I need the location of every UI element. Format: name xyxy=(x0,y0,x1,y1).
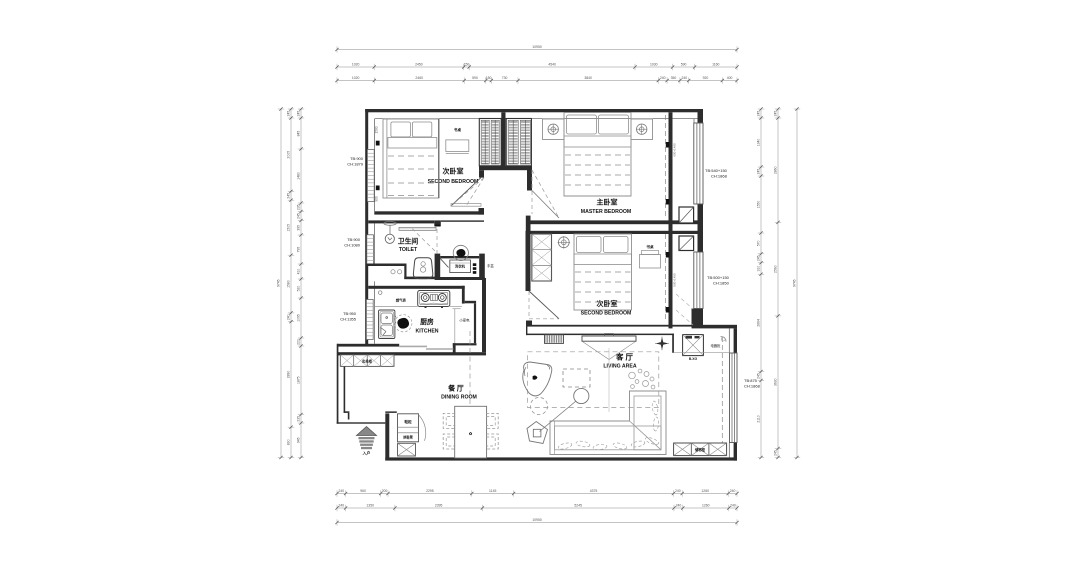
svg-text:CH:1355: CH:1355 xyxy=(340,317,357,322)
svg-text:240: 240 xyxy=(675,489,681,493)
svg-text:240: 240 xyxy=(338,489,344,493)
svg-text:245: 245 xyxy=(287,111,291,117)
svg-text:换鞋凳: 换鞋凳 xyxy=(403,435,413,440)
svg-text:2560: 2560 xyxy=(774,265,778,273)
svg-text:245: 245 xyxy=(287,193,291,199)
svg-text:TB:900: TB:900 xyxy=(347,237,361,242)
svg-text:150: 150 xyxy=(486,76,492,80)
svg-text:845: 845 xyxy=(297,131,301,137)
svg-text:1095: 1095 xyxy=(297,314,301,322)
svg-text:10950: 10950 xyxy=(532,45,542,49)
svg-text:520: 520 xyxy=(297,286,301,292)
svg-text:3630: 3630 xyxy=(774,378,778,386)
svg-text:玄关柜: 玄关柜 xyxy=(362,359,373,364)
svg-text:1260: 1260 xyxy=(701,489,709,493)
svg-text:2295: 2295 xyxy=(426,489,434,493)
svg-text:1260: 1260 xyxy=(702,503,710,507)
svg-text:客 厅: 客 厅 xyxy=(615,352,634,362)
svg-text:1020: 1020 xyxy=(352,76,360,80)
svg-text:235: 235 xyxy=(297,204,301,210)
svg-text:9745: 9745 xyxy=(793,279,797,287)
svg-text:电器柜: 电器柜 xyxy=(711,343,722,348)
svg-text:830: 830 xyxy=(287,439,291,445)
svg-text:3840: 3840 xyxy=(584,76,592,80)
svg-text:410: 410 xyxy=(297,269,301,275)
svg-text:主卧室: 主卧室 xyxy=(597,198,618,207)
svg-text:TB:900: TB:900 xyxy=(350,156,364,161)
svg-text:1160: 1160 xyxy=(712,62,719,66)
svg-text:TB:950: TB:950 xyxy=(343,311,357,316)
svg-text:240: 240 xyxy=(287,314,291,320)
svg-text:2005: 2005 xyxy=(287,151,291,159)
svg-text:CH:1879: CH:1879 xyxy=(347,162,364,167)
svg-text:CH:1850: CH:1850 xyxy=(713,281,730,286)
svg-text:燃气表: 燃气表 xyxy=(396,298,407,303)
svg-text:2450: 2450 xyxy=(415,62,423,66)
svg-text:310: 310 xyxy=(757,266,761,272)
svg-text:洗衣机: 洗衣机 xyxy=(455,264,466,269)
svg-text:9745: 9745 xyxy=(277,279,281,287)
svg-text:1875: 1875 xyxy=(297,376,301,384)
svg-text:1145: 1145 xyxy=(489,489,496,493)
svg-text:1580: 1580 xyxy=(287,280,291,288)
svg-text:500+1450: 500+1450 xyxy=(673,273,677,287)
svg-text:CH:1868: CH:1868 xyxy=(711,174,728,179)
svg-text:245: 245 xyxy=(774,450,778,456)
svg-text:200: 200 xyxy=(382,489,388,493)
svg-text:240: 240 xyxy=(730,489,736,493)
svg-text:CH:1080: CH:1080 xyxy=(344,243,361,248)
svg-text:395: 395 xyxy=(297,225,301,231)
svg-text:储物柜: 储物柜 xyxy=(695,447,706,452)
svg-text:570: 570 xyxy=(757,240,761,246)
svg-text:B.XG: B.XG xyxy=(689,357,698,361)
svg-text:2460: 2460 xyxy=(415,76,423,80)
svg-text:MASTER BEDROOM: MASTER BEDROOM xyxy=(581,209,631,215)
svg-text:245: 245 xyxy=(757,169,761,175)
svg-text:1480: 1480 xyxy=(297,172,301,180)
svg-text:350: 350 xyxy=(671,76,677,80)
svg-text:SECOND BEDROOM: SECOND BEDROOM xyxy=(581,311,632,317)
svg-text:1500: 1500 xyxy=(375,126,379,133)
svg-text:1550: 1550 xyxy=(757,201,761,209)
svg-text:400: 400 xyxy=(727,76,733,80)
svg-text:TB:500+150: TB:500+150 xyxy=(707,275,730,280)
svg-text:1505: 1505 xyxy=(287,224,291,232)
svg-text:1030: 1030 xyxy=(650,62,658,66)
svg-text:4375: 4375 xyxy=(590,489,598,493)
svg-text:书桌: 书桌 xyxy=(646,244,654,249)
svg-text:手盆: 手盆 xyxy=(487,263,494,268)
svg-text:TB:875: TB:875 xyxy=(744,378,758,383)
svg-text:220: 220 xyxy=(297,339,301,345)
svg-text:245: 245 xyxy=(757,373,761,379)
svg-text:590: 590 xyxy=(681,62,687,66)
svg-text:730: 730 xyxy=(502,76,508,80)
svg-text:960: 960 xyxy=(360,489,366,493)
svg-text:厨房: 厨房 xyxy=(420,317,434,326)
svg-text:920: 920 xyxy=(703,76,709,80)
svg-text:1020: 1020 xyxy=(352,62,360,66)
svg-text:LIVING AREA: LIVING AREA xyxy=(603,364,636,370)
svg-text:945: 945 xyxy=(297,437,301,443)
svg-text:245: 245 xyxy=(297,111,301,117)
svg-text:240: 240 xyxy=(338,503,344,507)
svg-text:240: 240 xyxy=(660,76,666,80)
svg-text:书桌: 书桌 xyxy=(454,127,462,132)
svg-text:SECOND BEDROOM: SECOND BEDROOM xyxy=(428,179,479,185)
svg-text:150: 150 xyxy=(464,62,470,66)
svg-text:2110: 2110 xyxy=(757,415,761,422)
svg-text:入户: 入户 xyxy=(363,450,371,456)
svg-text:餐 厅: 餐 厅 xyxy=(447,384,464,393)
svg-text:次卧室: 次卧室 xyxy=(443,167,464,176)
svg-text:TOILET: TOILET xyxy=(399,247,418,253)
svg-text:CH:1868: CH:1868 xyxy=(744,384,761,389)
svg-text:卫生间: 卫生间 xyxy=(398,237,419,246)
svg-text:795: 795 xyxy=(297,247,301,253)
svg-text:245: 245 xyxy=(297,213,301,219)
svg-text:240: 240 xyxy=(676,503,682,507)
svg-text:240: 240 xyxy=(730,503,736,507)
svg-text:TB:540+150: TB:540+150 xyxy=(705,168,728,173)
svg-text:240: 240 xyxy=(681,76,687,80)
svg-text:2860: 2860 xyxy=(774,166,778,174)
svg-text:2664: 2664 xyxy=(757,319,761,327)
svg-text:1340: 1340 xyxy=(757,139,761,147)
svg-text:2395: 2395 xyxy=(435,503,443,507)
svg-text:5245: 5245 xyxy=(574,503,582,507)
svg-text:1350: 1350 xyxy=(366,503,374,507)
svg-text:245: 245 xyxy=(774,111,778,117)
svg-text:2890: 2890 xyxy=(287,371,291,379)
svg-text:590: 590 xyxy=(472,76,478,80)
svg-text:235: 235 xyxy=(297,416,301,422)
svg-text:次卧室: 次卧室 xyxy=(597,299,618,308)
svg-text:600+1490: 600+1490 xyxy=(673,143,677,157)
svg-text:鞋柜: 鞋柜 xyxy=(404,419,412,424)
svg-text:DINING ROOM: DINING ROOM xyxy=(441,395,477,401)
svg-text:4540: 4540 xyxy=(548,62,556,66)
svg-text:小家电: 小家电 xyxy=(459,318,470,323)
svg-text:10950: 10950 xyxy=(532,518,542,522)
svg-text:900: 900 xyxy=(375,196,379,202)
svg-text:KITCHEN: KITCHEN xyxy=(415,329,438,335)
svg-text:245: 245 xyxy=(757,111,761,117)
svg-text:245: 245 xyxy=(757,255,761,261)
